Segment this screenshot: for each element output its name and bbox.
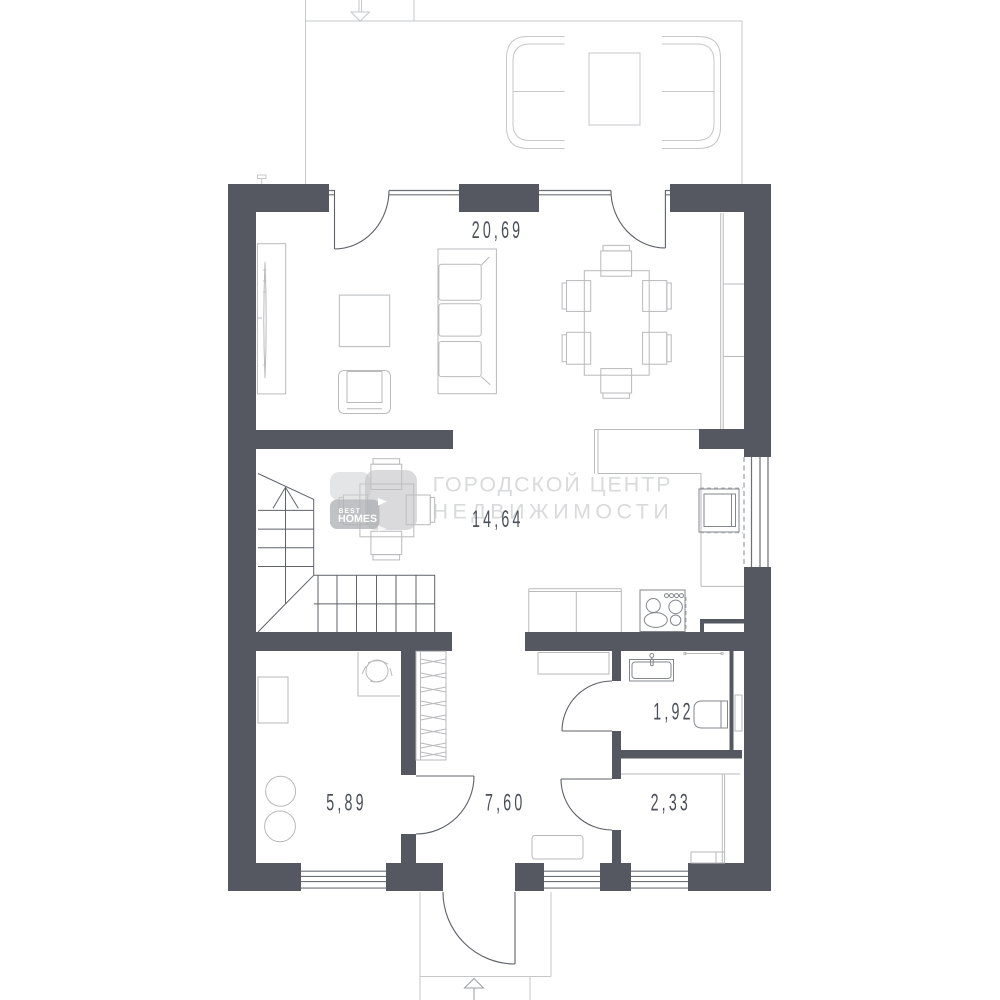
svg-text:7,60: 7,60 — [485, 790, 525, 817]
svg-text:НЕДВИЖИМОСТИ: НЕДВИЖИМОСТИ — [433, 500, 674, 524]
svg-text:20,69: 20,69 — [472, 217, 524, 244]
svg-text:ГОРОДСКОЙ ЦЕНТР: ГОРОДСКОЙ ЦЕНТР — [433, 472, 673, 497]
svg-text:14,64: 14,64 — [472, 507, 524, 534]
svg-text:5,89: 5,89 — [326, 790, 366, 817]
svg-text:HOMES: HOMES — [338, 513, 377, 525]
svg-text:1,92: 1,92 — [653, 699, 693, 726]
svg-text:2,33: 2,33 — [651, 790, 691, 817]
